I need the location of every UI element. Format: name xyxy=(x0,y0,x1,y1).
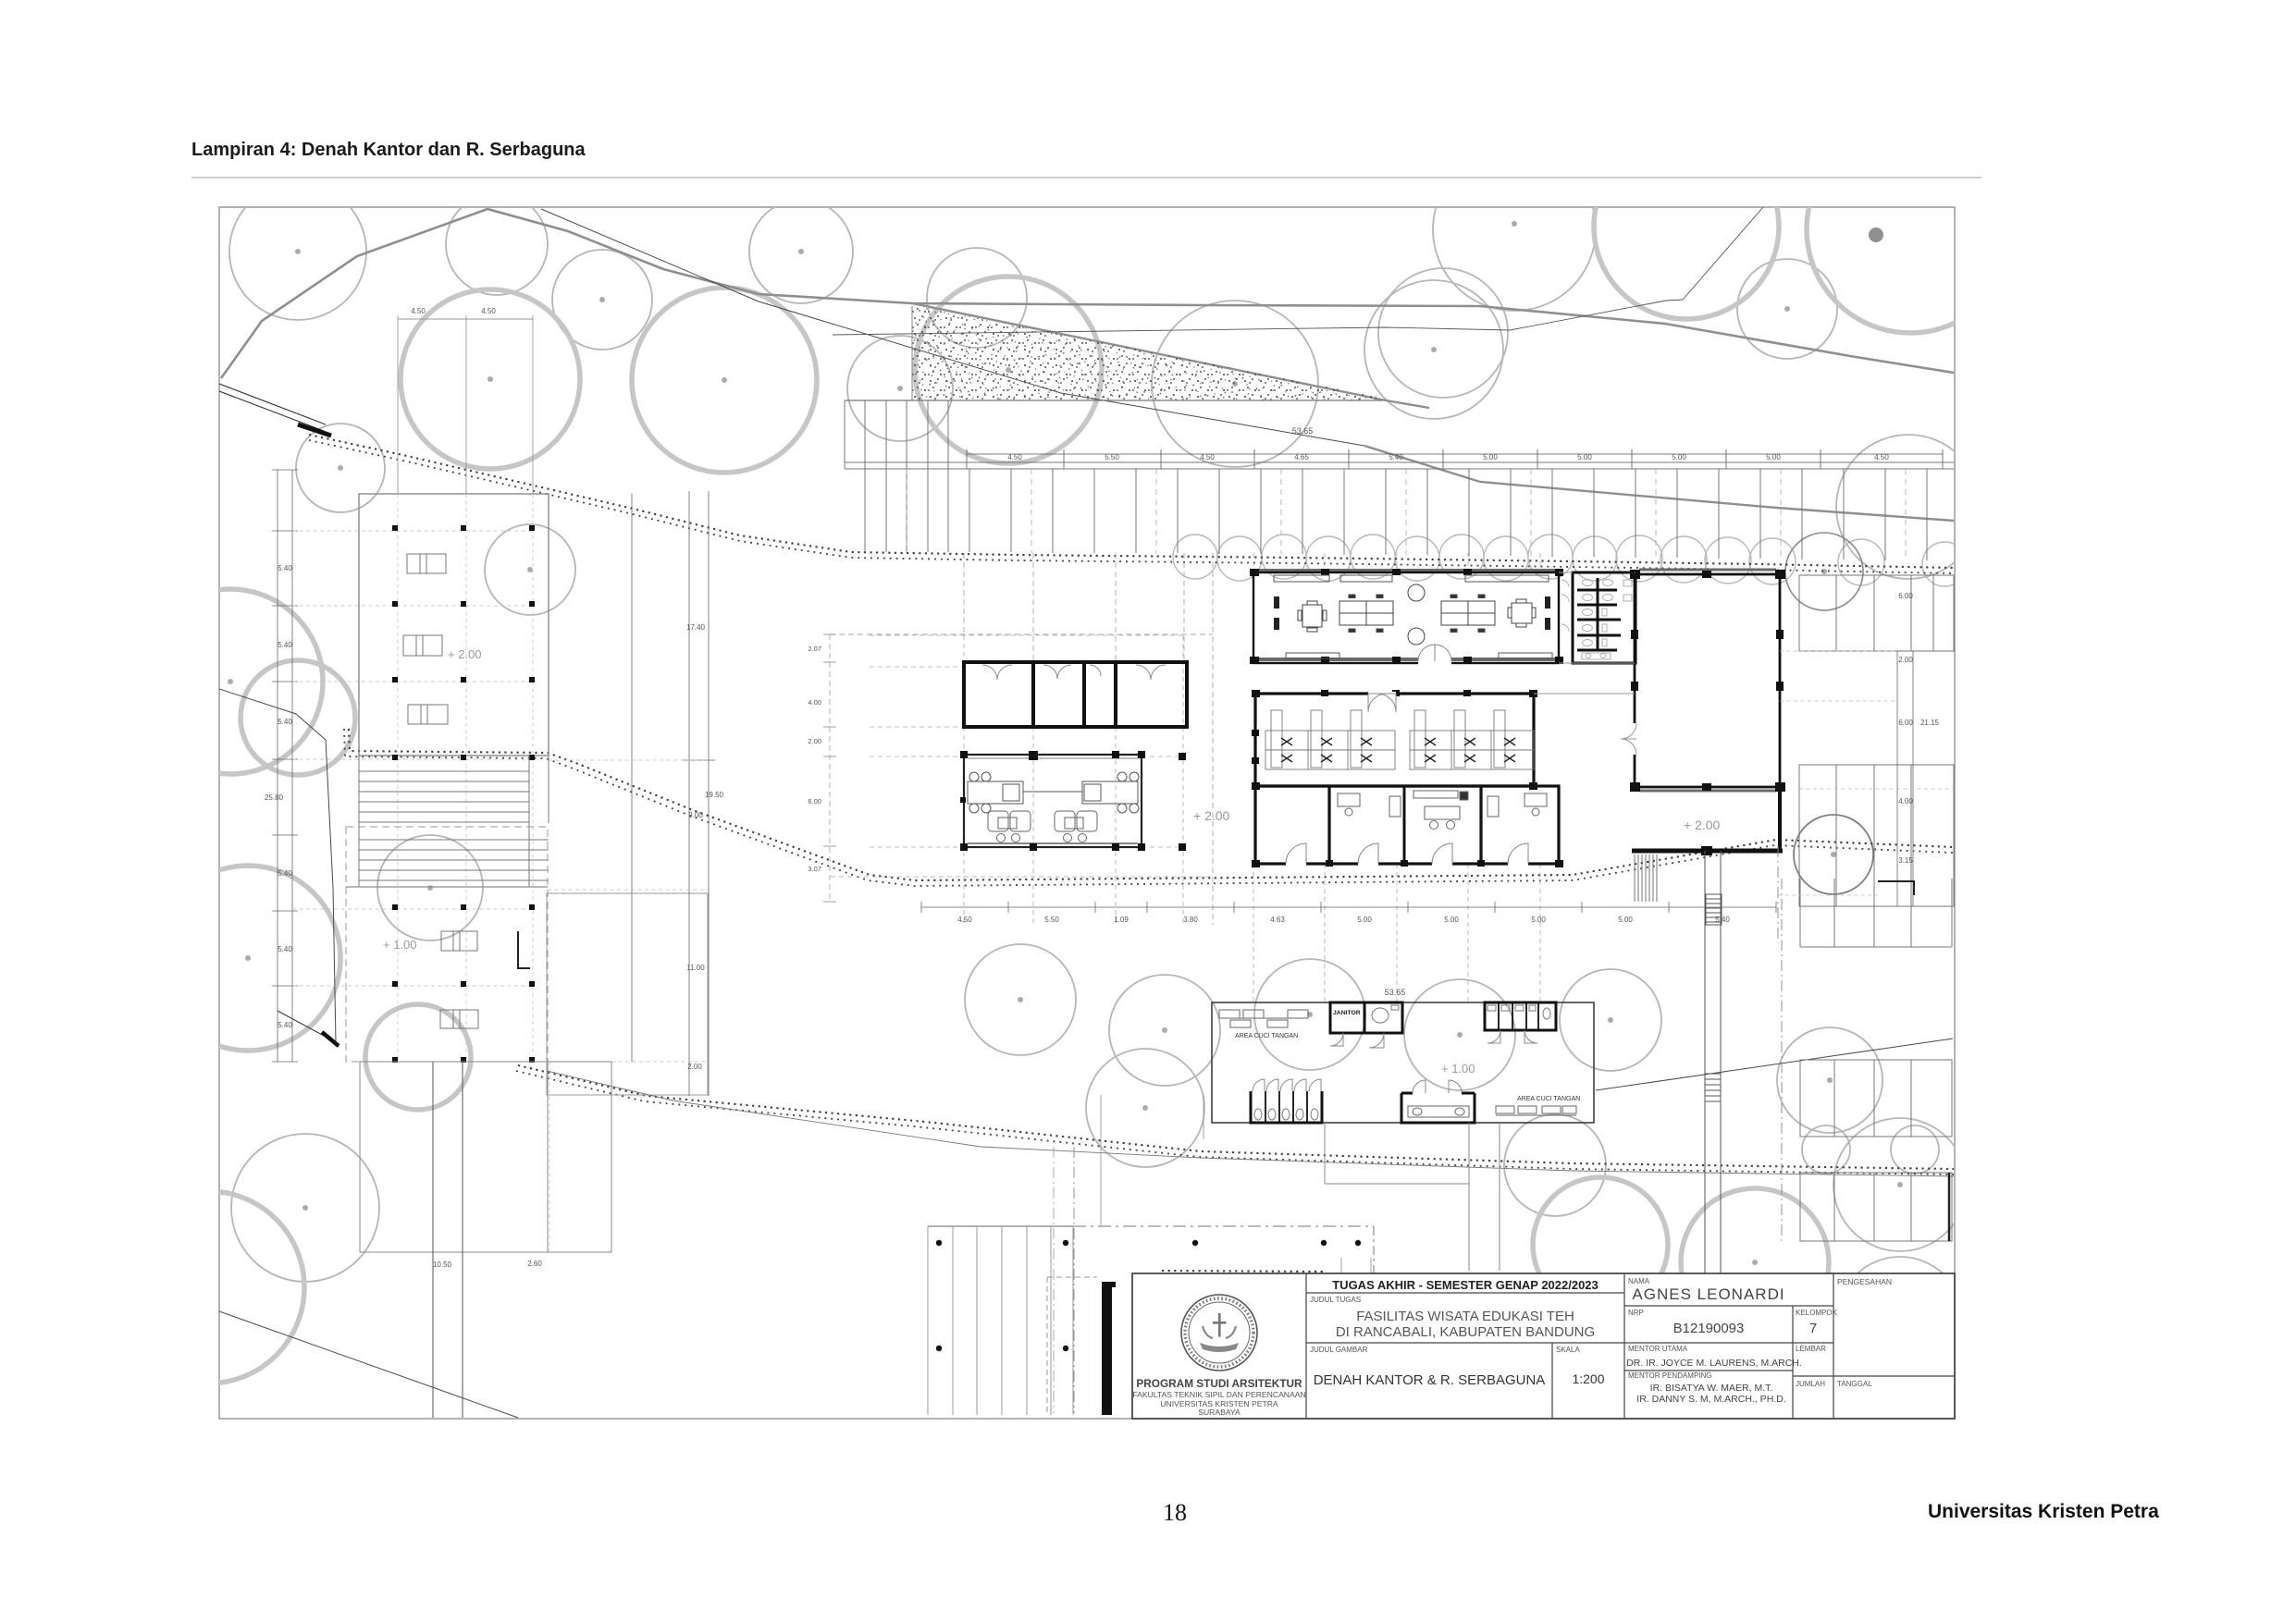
svg-text:5.00: 5.00 xyxy=(1672,453,1686,461)
svg-text:PENGESAHAN: PENGESAHAN xyxy=(1837,1277,1892,1286)
svg-text:B12190093: B12190093 xyxy=(1673,1321,1745,1336)
svg-text:AREA CUCI TANGAN: AREA CUCI TANGAN xyxy=(1517,1096,1580,1102)
svg-text:AGNES LEONARDI: AGNES LEONARDI xyxy=(1632,1285,1784,1303)
svg-text:4.50: 4.50 xyxy=(1874,453,1889,461)
svg-text:+ 2.00: + 2.00 xyxy=(1193,808,1230,823)
svg-text:TUGAS AKHIR - SEMESTER GENAP 2: TUGAS AKHIR - SEMESTER GENAP 2022/2023 xyxy=(1332,1278,1599,1292)
svg-text:19.50: 19.50 xyxy=(705,791,724,799)
svg-text:IR. BISATYA W. MAER, M.T.: IR. BISATYA W. MAER, M.T. xyxy=(1650,1383,1773,1394)
svg-text:5.00: 5.00 xyxy=(1444,916,1459,924)
svg-text:11.00: 11.00 xyxy=(686,964,705,972)
svg-text:5.40: 5.40 xyxy=(278,564,292,572)
svg-text:AREA CUCI TANGAN: AREA CUCI TANGAN xyxy=(1235,1033,1298,1039)
svg-text:4.00: 4.00 xyxy=(1898,797,1913,805)
svg-text:4.00: 4.00 xyxy=(808,698,821,707)
svg-text:21.15: 21.15 xyxy=(1920,719,1940,727)
svg-text:17.40: 17.40 xyxy=(686,623,706,632)
svg-text:+ 2.00: + 2.00 xyxy=(1684,818,1721,832)
svg-text:1.09: 1.09 xyxy=(1114,916,1129,924)
svg-text:MENTOR PENDAMPING: MENTOR PENDAMPING xyxy=(1628,1371,1712,1380)
svg-text:5.00: 5.00 xyxy=(1483,453,1498,461)
svg-text:FAKULTAS TEKNIK SIPIL DAN PERE: FAKULTAS TEKNIK SIPIL DAN PERENCANAAN xyxy=(1132,1390,1305,1399)
svg-text:2.60: 2.60 xyxy=(527,1260,542,1268)
svg-text:SURABAYA: SURABAYA xyxy=(1198,1408,1241,1417)
svg-text:6.00: 6.00 xyxy=(808,797,821,805)
svg-text:5.00: 5.00 xyxy=(1618,916,1633,924)
svg-text:JUDUL TUGAS: JUDUL TUGAS xyxy=(1310,1296,1361,1304)
svg-text:3.07: 3.07 xyxy=(808,865,821,873)
svg-text:+ 1.00: + 1.00 xyxy=(1441,1062,1475,1076)
svg-text:4.50: 4.50 xyxy=(1007,453,1022,461)
svg-text:10.50: 10.50 xyxy=(433,1260,452,1269)
svg-text:5.00: 5.00 xyxy=(1531,916,1546,924)
svg-text:4.50: 4.50 xyxy=(481,307,496,315)
svg-text:5.40: 5.40 xyxy=(1715,916,1730,924)
svg-text:9.00: 9.00 xyxy=(688,811,703,819)
svg-text:4.50: 4.50 xyxy=(1200,453,1215,461)
svg-text:DENAH KANTOR & R. SERBAGUNA: DENAH KANTOR & R. SERBAGUNA xyxy=(1314,1372,1546,1388)
svg-text:5.40: 5.40 xyxy=(278,641,292,649)
svg-text:3.80: 3.80 xyxy=(1183,916,1198,924)
svg-text:TANGGAL: TANGGAL xyxy=(1837,1380,1872,1388)
svg-text:5.40: 5.40 xyxy=(278,945,292,953)
svg-text:1:200: 1:200 xyxy=(1572,1371,1604,1386)
svg-text:DI RANCABALI, KABUPATEN BANDUN: DI RANCABALI, KABUPATEN BANDUNG xyxy=(1336,1324,1595,1340)
svg-text:4.63: 4.63 xyxy=(1270,916,1285,924)
svg-text:4.50: 4.50 xyxy=(957,916,972,924)
svg-text:5.50: 5.50 xyxy=(1044,916,1059,924)
svg-text:5.40: 5.40 xyxy=(278,718,292,726)
svg-text:25.80: 25.80 xyxy=(265,793,284,802)
svg-text:IR. DANNY S. M, M.ARCH., PH.D.: IR. DANNY S. M, M.ARCH., PH.D. xyxy=(1636,1394,1785,1405)
svg-text:SKALA: SKALA xyxy=(1556,1346,1580,1354)
svg-text:JUMLAH: JUMLAH xyxy=(1796,1380,1825,1388)
svg-text:53.65: 53.65 xyxy=(1292,426,1314,436)
svg-text:6.00: 6.00 xyxy=(1898,719,1913,727)
svg-text:2.07: 2.07 xyxy=(808,645,821,653)
svg-text:KELOMPOK: KELOMPOK xyxy=(1796,1309,1838,1317)
svg-text:LEMBAR: LEMBAR xyxy=(1796,1345,1826,1353)
svg-text:5.50: 5.50 xyxy=(1105,453,1119,461)
svg-text:2.00: 2.00 xyxy=(687,1063,702,1071)
svg-text:NRP: NRP xyxy=(1628,1309,1644,1317)
svg-text:5.40: 5.40 xyxy=(1389,453,1403,461)
svg-text:4.65: 4.65 xyxy=(1294,453,1309,461)
svg-text:5.00: 5.00 xyxy=(1577,453,1592,461)
svg-text:4.50: 4.50 xyxy=(411,307,426,315)
svg-text:2.00: 2.00 xyxy=(1898,656,1913,664)
svg-text:PROGRAM STUDI ARSITEKTUR: PROGRAM STUDI ARSITEKTUR xyxy=(1136,1377,1302,1390)
svg-text:53.65: 53.65 xyxy=(1385,988,1406,997)
svg-text:7: 7 xyxy=(1809,1321,1817,1336)
svg-text:DR. IR. JOYCE M. LAURENS, M.AR: DR. IR. JOYCE M. LAURENS, M.ARCH. xyxy=(1626,1358,1802,1369)
svg-text:6.00: 6.00 xyxy=(1898,592,1913,600)
svg-text:5.00: 5.00 xyxy=(1357,916,1372,924)
svg-text:3.15: 3.15 xyxy=(1898,856,1913,865)
svg-text:2.00: 2.00 xyxy=(808,737,821,745)
svg-text:JANITOR: JANITOR xyxy=(1333,1010,1361,1016)
svg-text:NAMA: NAMA xyxy=(1628,1277,1650,1285)
svg-text:5.40: 5.40 xyxy=(278,869,292,878)
svg-text:MENTOR UTAMA: MENTOR UTAMA xyxy=(1628,1345,1688,1353)
svg-text:FASILITAS WISATA EDUKASI TEH: FASILITAS WISATA EDUKASI TEH xyxy=(1356,1309,1574,1324)
svg-text:+ 2.00: + 2.00 xyxy=(448,647,482,661)
svg-text:JUDUL GAMBAR: JUDUL GAMBAR xyxy=(1310,1346,1368,1354)
svg-text:5.00: 5.00 xyxy=(1766,453,1781,461)
svg-text:+ 1.00: + 1.00 xyxy=(383,938,417,952)
svg-text:5.40: 5.40 xyxy=(278,1021,292,1029)
